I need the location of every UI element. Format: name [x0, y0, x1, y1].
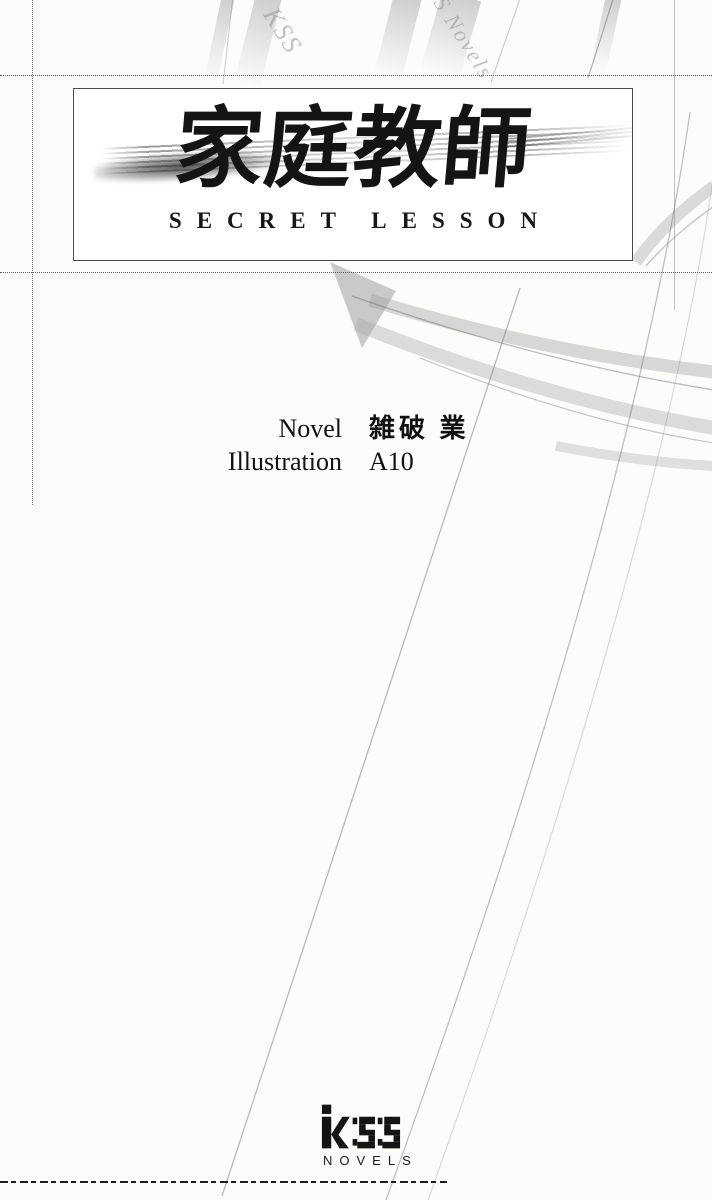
- title-box: 家庭教師 SECRET LESSON: [73, 88, 633, 261]
- scan-streak: [202, 0, 234, 90]
- illustration-label: Illustration: [0, 445, 342, 478]
- credit-row-novel: Novel 雑破 業: [0, 412, 490, 445]
- publisher-block: NOVELS: [316, 1103, 406, 1168]
- mid-horizontal-rule: [0, 272, 712, 273]
- book-subtitle: SECRET LESSON: [74, 208, 632, 234]
- kss-logo: [321, 1103, 401, 1150]
- scan-streak: [589, 0, 622, 78]
- book-title: 家庭教師: [70, 103, 636, 200]
- novel-author: 雑破 業: [369, 412, 470, 445]
- top-horizontal-rule: [0, 75, 712, 76]
- bottom-dashed-rule: [0, 1181, 447, 1183]
- novel-label: Novel: [0, 412, 342, 445]
- credit-row-illustration: Illustration A10: [0, 445, 490, 478]
- credits-block: Novel 雑破 業 Illustration A10: [0, 412, 490, 478]
- right-faint-rule: [674, 0, 675, 310]
- imprint-label: NOVELS: [316, 1153, 406, 1168]
- scanned-title-page: KSS S Novels 家庭教師 SECRET LESSON: [0, 0, 712, 1200]
- illustrator-name: A10: [369, 445, 414, 478]
